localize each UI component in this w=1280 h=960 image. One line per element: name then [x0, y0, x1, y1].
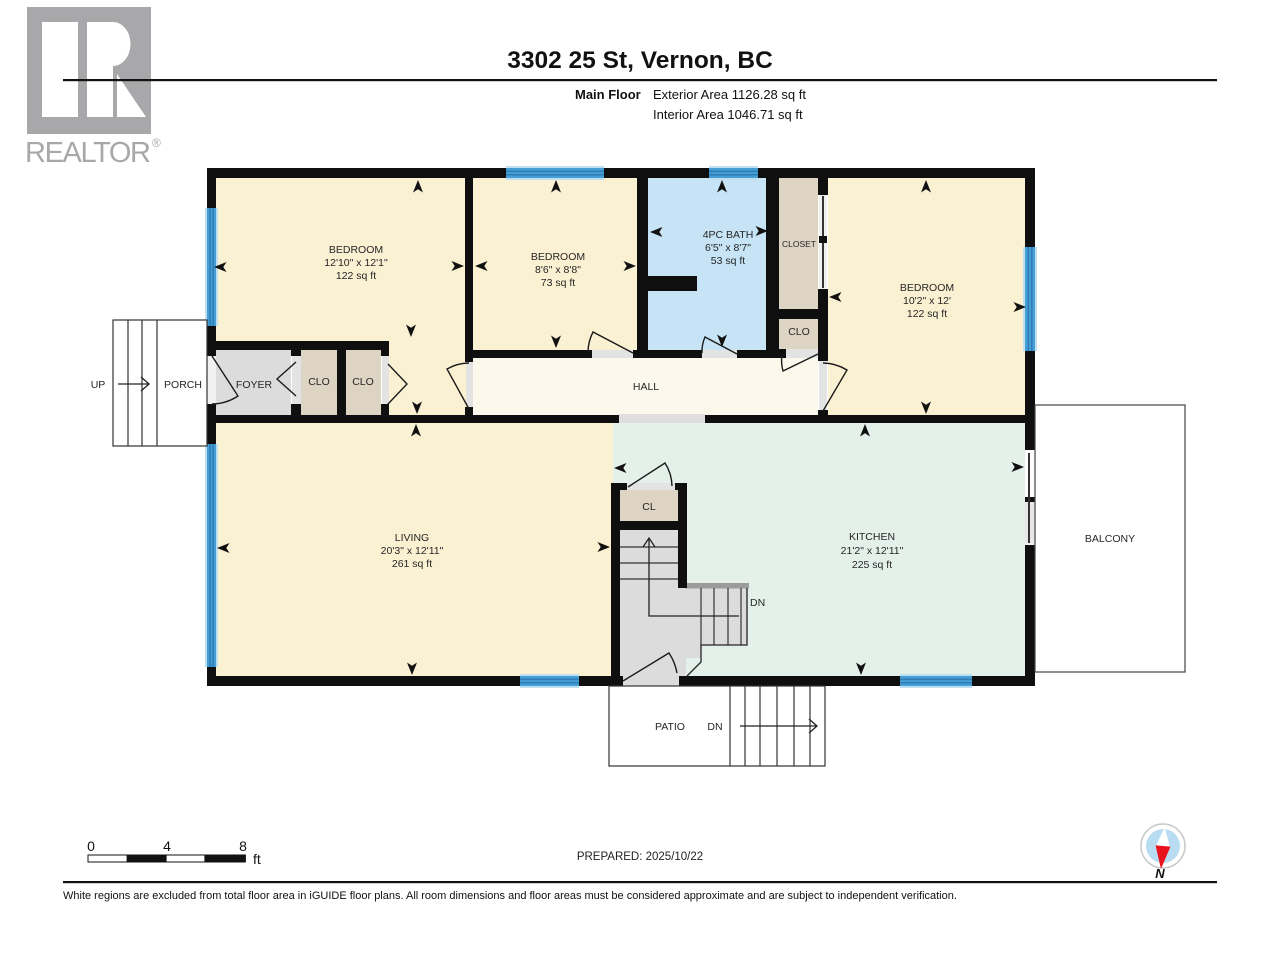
svg-text:4: 4	[163, 838, 171, 854]
svg-text:12'10" x 12'1": 12'10" x 12'1"	[324, 257, 388, 269]
svg-text:DN: DN	[750, 597, 765, 609]
svg-text:DN: DN	[707, 721, 722, 733]
svg-text:PREPARED: 2025/10/22: PREPARED: 2025/10/22	[577, 851, 703, 863]
svg-text:N: N	[1155, 866, 1165, 881]
svg-text:21'2" x 12'11": 21'2" x 12'11"	[841, 545, 904, 557]
svg-text:KITCHEN: KITCHEN	[849, 531, 895, 543]
svg-text:HALL: HALL	[633, 381, 659, 393]
svg-text:6'5" x 8'7": 6'5" x 8'7"	[705, 242, 751, 254]
svg-text:PORCH: PORCH	[164, 379, 202, 391]
svg-text:Main Floor: Main Floor	[575, 87, 641, 102]
svg-text:BEDROOM: BEDROOM	[531, 251, 585, 263]
svg-text:10'2" x 12': 10'2" x 12'	[903, 295, 951, 307]
svg-text:Interior Area 1046.71 sq ft: Interior Area 1046.71 sq ft	[653, 107, 803, 122]
svg-text:8'6" x 8'8": 8'6" x 8'8"	[535, 264, 581, 276]
svg-text:122 sq ft: 122 sq ft	[907, 308, 947, 320]
svg-text:ft: ft	[253, 851, 261, 867]
svg-text:Exterior Area 1126.28 sq ft: Exterior Area 1126.28 sq ft	[653, 87, 806, 102]
svg-text:CLO: CLO	[788, 326, 810, 338]
svg-text:4PC BATH: 4PC BATH	[703, 229, 754, 241]
svg-text:®: ®	[152, 136, 161, 150]
svg-text:FOYER: FOYER	[236, 379, 273, 391]
svg-text:73 sq ft: 73 sq ft	[541, 277, 576, 289]
svg-text:CLOSET: CLOSET	[782, 239, 816, 249]
svg-text:0: 0	[87, 838, 95, 854]
svg-text:8: 8	[239, 838, 247, 854]
svg-text:LIVING: LIVING	[395, 532, 429, 544]
svg-text:White regions are excluded fro: White regions are excluded from total fl…	[63, 890, 957, 902]
svg-text:122 sq ft: 122 sq ft	[336, 270, 376, 282]
svg-text:CLO: CLO	[352, 376, 374, 388]
svg-text:CL: CL	[642, 501, 656, 513]
svg-text:BALCONY: BALCONY	[1085, 533, 1135, 545]
svg-text:261 sq ft: 261 sq ft	[392, 558, 432, 570]
svg-text:CLO: CLO	[308, 376, 330, 388]
svg-text:BEDROOM: BEDROOM	[900, 282, 954, 294]
svg-text:UP: UP	[91, 379, 106, 391]
svg-text:53 sq ft: 53 sq ft	[711, 255, 746, 267]
svg-text:REALTOR: REALTOR	[25, 137, 151, 169]
svg-text:BEDROOM: BEDROOM	[329, 244, 383, 256]
svg-text:225 sq ft: 225 sq ft	[852, 559, 892, 571]
svg-text:3302 25 St, Vernon, BC: 3302 25 St, Vernon, BC	[507, 47, 773, 74]
svg-text:20'3" x 12'11": 20'3" x 12'11"	[381, 545, 444, 557]
svg-text:PATIO: PATIO	[655, 721, 685, 733]
